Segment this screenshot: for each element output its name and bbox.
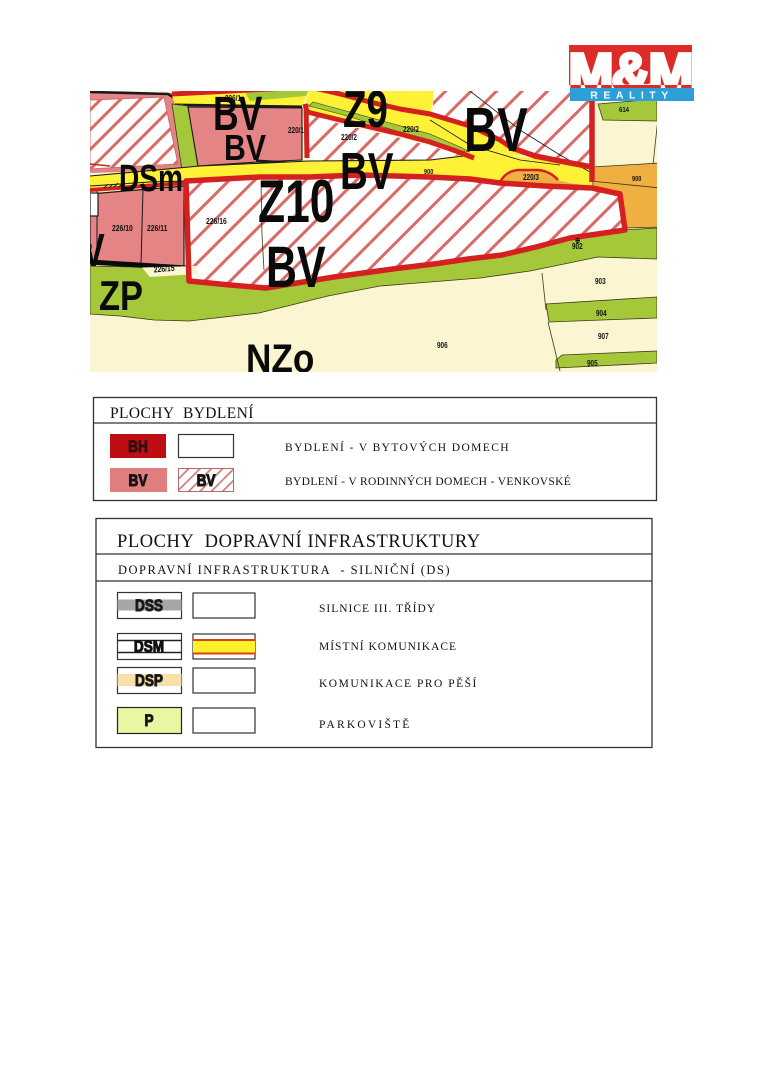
svg-text:V: V	[82, 224, 105, 276]
svg-text:BV: BV	[464, 95, 528, 164]
svg-text:614: 614	[619, 106, 629, 114]
svg-text:BV: BV	[266, 235, 326, 300]
svg-text:220/1: 220/1	[288, 125, 304, 135]
svg-text:905: 905	[587, 358, 598, 368]
svg-text:PLOCHY BYDLENÍ: PLOCHY BYDLENÍ	[110, 405, 254, 422]
svg-text:226/15: 226/15	[154, 263, 176, 275]
svg-text:9: 9	[88, 242, 92, 252]
svg-text:904: 904	[596, 308, 607, 318]
svg-text:PLOCHY DOPRAVNÍ INFRASTRUKTUR: PLOCHY DOPRAVNÍ INFRASTRUKTURY	[117, 530, 481, 552]
svg-text:900: 900	[424, 168, 434, 176]
svg-text:BV: BV	[340, 142, 394, 200]
svg-text:Z10: Z10	[258, 169, 334, 236]
svg-text:DSm: DSm	[119, 158, 183, 200]
svg-text:226/10: 226/10	[112, 223, 133, 233]
svg-text:BH: BH	[128, 438, 148, 457]
svg-text:220/3: 220/3	[523, 172, 539, 182]
svg-text:DSS: DSS	[135, 597, 163, 616]
svg-text:900: 900	[632, 175, 642, 183]
svg-text:REALITY: REALITY	[590, 90, 673, 102]
svg-text:DOPRAVNÍ INFRASTRUKTURA - SIL: DOPRAVNÍ INFRASTRUKTURA - SILNIČNÍ (DS)	[118, 563, 451, 577]
svg-text:226/1: 226/1	[225, 93, 241, 103]
svg-text:226/11: 226/11	[147, 223, 168, 233]
svg-text:NZo: NZo	[246, 336, 314, 381]
svg-text:BV: BV	[129, 472, 149, 491]
svg-text:KOMUNIKACE PRO PĚŠÍ: KOMUNIKACE PRO PĚŠÍ	[319, 676, 478, 690]
svg-text:DSP: DSP	[135, 672, 163, 691]
svg-text:MÍSTNÍ KOMUNIKACE: MÍSTNÍ KOMUNIKACE	[319, 639, 457, 653]
svg-text:BYDLENÍ - V BYTOVÝCH DOMECH: BYDLENÍ - V BYTOVÝCH DOMECH	[285, 440, 510, 454]
svg-text:DSM: DSM	[134, 638, 164, 657]
svg-text:SILNICE III. TŘÍDY: SILNICE III. TŘÍDY	[319, 601, 436, 615]
svg-text:220/2: 220/2	[341, 132, 357, 142]
svg-text:Z9: Z9	[343, 80, 388, 138]
svg-text:P: P	[144, 712, 153, 731]
svg-text:ZP: ZP	[99, 273, 143, 320]
svg-text:BYDLENÍ - V RODINNÝCH DOMEC: BYDLENÍ - V RODINNÝCH DOMECH - VENKOVSKÉ	[285, 474, 571, 488]
svg-text:BV: BV	[224, 129, 266, 169]
svg-text:226/16: 226/16	[206, 216, 227, 226]
svg-text:906: 906	[437, 340, 448, 350]
svg-text:PARKOVIŠTĚ: PARKOVIŠTĚ	[319, 717, 412, 731]
svg-text:907: 907	[598, 331, 609, 341]
svg-text:220/2: 220/2	[403, 124, 419, 134]
svg-text:⊕: ⊕	[575, 235, 580, 245]
svg-text:903: 903	[595, 276, 606, 286]
svg-text:BV: BV	[197, 472, 217, 491]
